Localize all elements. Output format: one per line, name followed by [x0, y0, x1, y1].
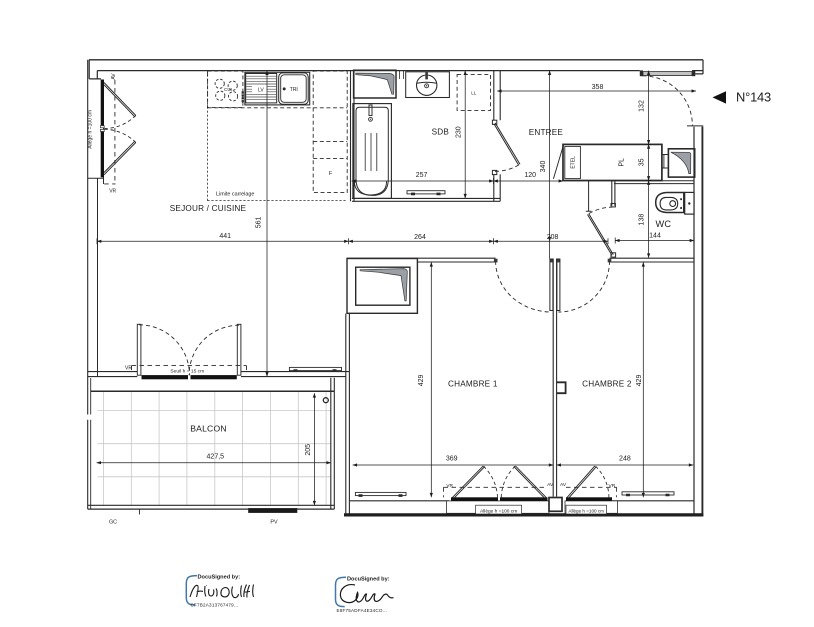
svg-text:CF7B2A313767479...: CF7B2A313767479... — [191, 603, 239, 608]
svg-text:230: 230 — [456, 126, 463, 138]
svg-text:SDB: SDB — [432, 128, 450, 137]
svg-text:144: 144 — [649, 233, 661, 240]
svg-text:Limite carrelage: Limite carrelage — [216, 191, 254, 197]
svg-text:369: 369 — [446, 455, 458, 462]
svg-text:257: 257 — [416, 172, 428, 179]
svg-text:SEJOUR / CUISINE: SEJOUR / CUISINE — [170, 204, 247, 213]
svg-text:Seuil h = 15 cm: Seuil h = 15 cm — [170, 368, 204, 374]
svg-text:120: 120 — [524, 172, 536, 179]
svg-text:VR: VR — [109, 189, 116, 195]
svg-text:PL: PL — [619, 158, 626, 167]
svg-text:AV: AV — [547, 482, 554, 488]
svg-text:ETEL: ETEL — [571, 156, 577, 169]
svg-text:429: 429 — [636, 375, 643, 387]
svg-text:DocuSigned by:: DocuSigned by: — [198, 575, 241, 581]
svg-text:CHAMBRE 2: CHAMBRE 2 — [582, 379, 632, 388]
svg-text:ENTREE: ENTREE — [529, 128, 564, 137]
svg-text:441: 441 — [219, 233, 231, 240]
svg-text:VR: VR — [125, 366, 132, 372]
svg-text:LL: LL — [471, 90, 477, 95]
svg-text:208: 208 — [547, 234, 559, 241]
svg-text:CUI: CUI — [224, 87, 232, 92]
svg-text:248: 248 — [619, 455, 631, 462]
svg-text:Allège h =100 cm: Allège h =100 cm — [568, 508, 604, 513]
svg-text:138: 138 — [639, 214, 646, 226]
svg-text:N°143: N°143 — [736, 90, 771, 105]
svg-text:VR: VR — [609, 483, 616, 489]
svg-text:205: 205 — [305, 444, 312, 456]
svg-text:AV: AV — [111, 73, 117, 80]
svg-text:VR: VR — [446, 483, 453, 489]
svg-text:WC: WC — [656, 219, 672, 229]
svg-text:35: 35 — [639, 158, 646, 166]
svg-text:358: 358 — [592, 84, 604, 91]
svg-text:E8F75ADFA4E34CO...: E8F75ADFA4E34CO... — [337, 608, 388, 613]
svg-text:TRI: TRI — [290, 87, 298, 93]
svg-text:264: 264 — [414, 234, 426, 241]
svg-text:AV: AV — [560, 482, 567, 488]
svg-text:132: 132 — [639, 100, 646, 112]
svg-text:427,5: 427,5 — [207, 454, 225, 461]
svg-text:GC: GC — [109, 519, 117, 525]
svg-text:Allège h =100 cm: Allège h =100 cm — [87, 110, 93, 149]
svg-text:DocuSigned by:: DocuSigned by: — [347, 576, 390, 582]
svg-text:LV: LV — [258, 87, 264, 93]
svg-text:BALCON: BALCON — [190, 424, 227, 434]
svg-text:PV: PV — [270, 519, 278, 525]
svg-text:CHAMBRE 1: CHAMBRE 1 — [448, 379, 498, 388]
svg-text:340: 340 — [540, 161, 547, 173]
svg-text:Allège h =100 cm: Allège h =100 cm — [480, 508, 517, 514]
svg-text:561: 561 — [256, 216, 263, 228]
svg-text:429: 429 — [418, 374, 425, 386]
